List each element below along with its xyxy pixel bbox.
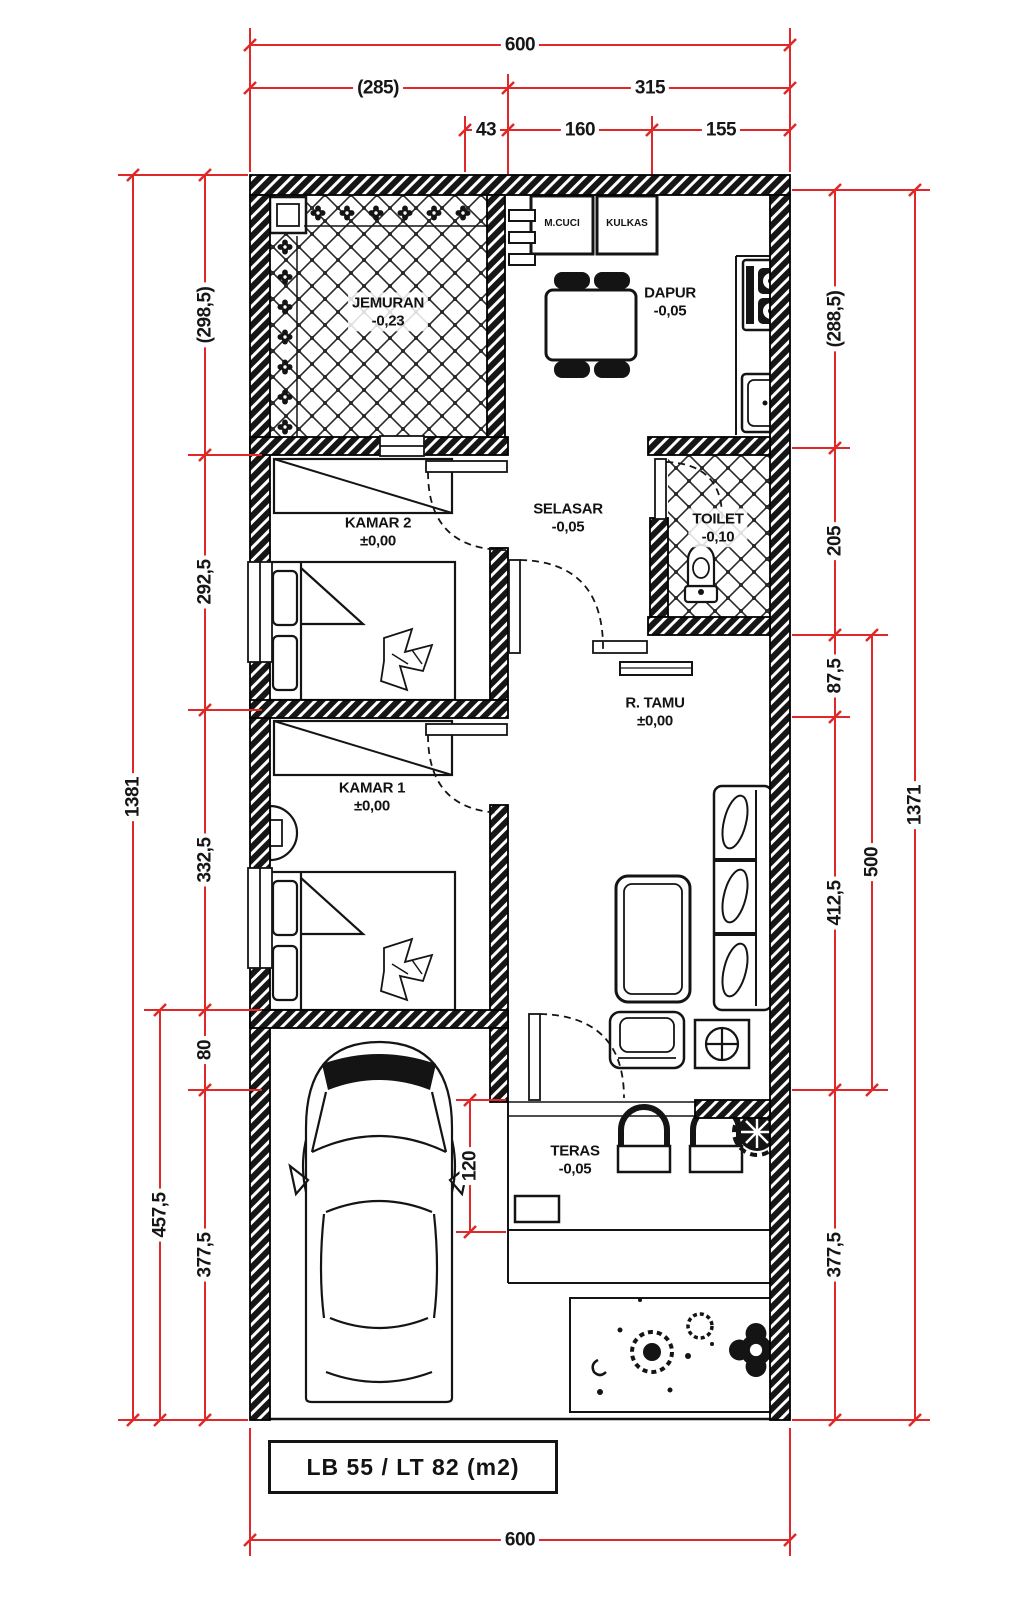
door-selasar — [509, 560, 603, 653]
dim-right-87-5: 87,5 — [825, 655, 846, 698]
car — [290, 1042, 468, 1402]
dim-left-298-5: (298,5) — [195, 283, 216, 348]
room-label-selasar: SELASAR -0,05 — [533, 500, 603, 535]
room-level-kamar1: ±0,00 — [354, 797, 390, 815]
room-level-toilet: -0,10 — [702, 528, 735, 546]
dim-left-292-5: 292,5 — [195, 555, 216, 608]
dim-right-205: 205 — [825, 522, 846, 560]
window-jemuran — [380, 436, 424, 456]
room-label-teras: TERAS -0,05 — [550, 1142, 599, 1177]
side-table — [695, 1020, 749, 1068]
room-name-dapur: DAPUR — [644, 284, 696, 302]
coffee-table — [616, 876, 690, 1002]
room-name-jemuran: JEMURAN — [352, 294, 424, 312]
dim-right-total-1371: 1371 — [905, 781, 926, 829]
room-level-kamar2: ±0,00 — [360, 532, 396, 550]
dim-right-500: 500 — [862, 843, 883, 881]
washer-label: M.CUCI — [544, 219, 580, 229]
wall-basin — [270, 806, 297, 860]
dim-left-80: 80 — [195, 1036, 216, 1064]
window-kamar2 — [248, 562, 272, 662]
room-name-toilet: TOILET — [692, 510, 743, 528]
room-label-r-tamu: R. TAMU ±0,00 — [625, 694, 684, 729]
room-label-toilet: TOILET -0,10 — [688, 508, 747, 547]
dim-top-315: 315 — [631, 78, 669, 99]
dim-teras-120: 120 — [460, 1147, 481, 1185]
doormat — [515, 1196, 559, 1222]
dim-left-377-5: 377,5 — [195, 1228, 216, 1281]
window-kamar1 — [248, 868, 272, 968]
room-name-r-tamu: R. TAMU — [625, 694, 684, 712]
room-name-kamar1: KAMAR 1 — [339, 779, 405, 797]
dim-left-332-5: 332,5 — [195, 833, 216, 886]
dim-top-155: 155 — [702, 120, 740, 141]
sofa — [714, 786, 772, 1010]
fridge-label: KULKAS — [606, 219, 648, 229]
room-name-kamar2: KAMAR 2 — [345, 514, 411, 532]
dim-left-total-1381: 1381 — [123, 773, 144, 821]
room-level-r-tamu: ±0,00 — [637, 712, 673, 730]
armchair — [610, 1012, 684, 1068]
dim-top-43: 43 — [472, 120, 500, 141]
room-level-teras: -0,05 — [559, 1160, 592, 1178]
area-summary-box: LB 55 / LT 82 (m2) — [268, 1440, 558, 1494]
room-name-selasar: SELASAR — [533, 500, 603, 518]
dining-set — [546, 272, 636, 378]
dim-right-377-5: 377,5 — [825, 1228, 846, 1281]
bed-kamar2 — [268, 562, 455, 700]
area-summary-label: LB 55 / LT 82 (m2) — [306, 1456, 519, 1479]
dim-right-288-5: (288,5) — [825, 287, 846, 352]
dim-right-412-5: 412,5 — [825, 876, 846, 929]
dim-top-total: 600 — [501, 35, 539, 56]
bed-kamar1 — [268, 872, 455, 1010]
floor-plan-canvas: 600 (285) 315 43 160 155 1381 (298,5) 29… — [0, 0, 1024, 1610]
room-level-jemuran: -0,23 — [372, 312, 405, 330]
room-label-jemuran: JEMURAN -0,23 — [348, 292, 428, 331]
floor-plan-drawing — [0, 0, 1024, 1610]
dim-bottom-total: 600 — [501, 1530, 539, 1551]
dim-top-285: (285) — [353, 78, 403, 99]
room-label-dapur: DAPUR -0,05 — [644, 284, 696, 319]
garden — [508, 1283, 788, 1412]
console-table — [593, 641, 692, 675]
room-label-kamar1: KAMAR 1 ±0,00 — [339, 779, 405, 814]
slab-lines — [250, 1102, 790, 1419]
room-name-teras: TERAS — [550, 1142, 599, 1160]
room-level-selasar: -0,05 — [552, 518, 585, 536]
room-label-kamar2: KAMAR 2 ±0,00 — [345, 514, 411, 549]
wc-toilet — [685, 545, 717, 602]
room-level-dapur: -0,05 — [654, 302, 687, 320]
kitchen-shelf — [509, 210, 535, 265]
dim-left-457-5: 457,5 — [150, 1188, 171, 1241]
dim-top-160: 160 — [561, 120, 599, 141]
